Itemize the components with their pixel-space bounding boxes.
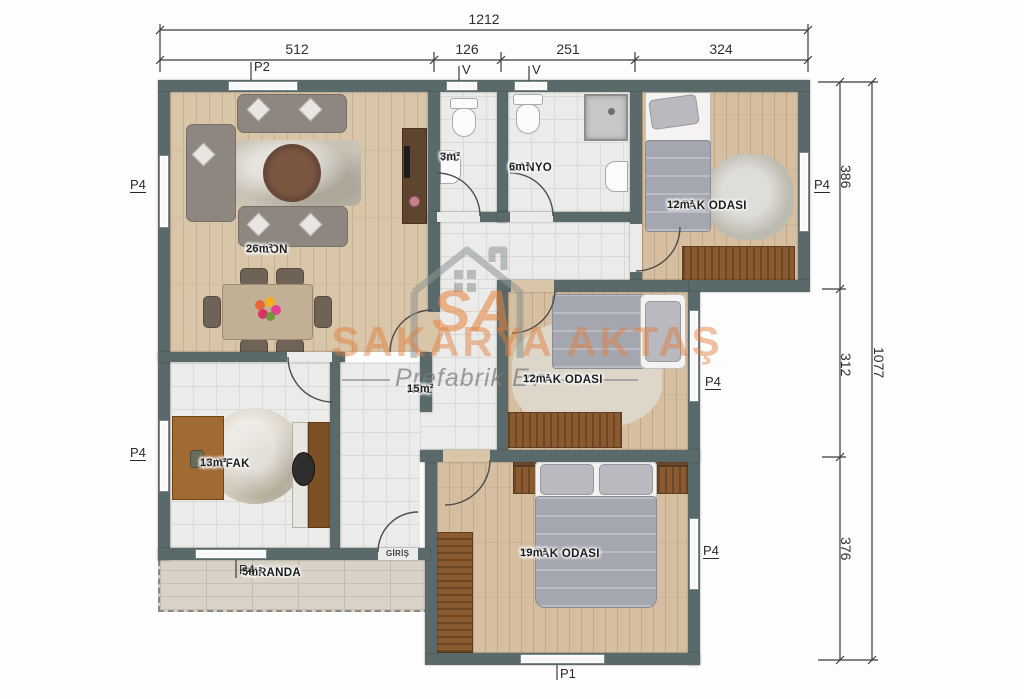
label-p4-salon-left: P4 [130,177,146,193]
label-v-banyo: V [532,62,541,77]
bedroom-middle-area: 12m² [523,374,550,386]
dim-top-total: 1212 [454,11,514,27]
bedroom-top-area: 12m² [667,200,694,212]
wc-door-arc [437,173,480,216]
banyo-door-arc [510,173,553,216]
dim-top-seg-251: 251 [538,41,598,57]
dim-right-total: 1077 [871,347,887,393]
bedroom-bottom-area: 19m² [520,548,547,560]
label-p2: P2 [254,59,270,74]
watermark-brand: SAKARYA AKTAŞ [292,318,762,366]
label-v-wc: V [462,62,471,77]
dim-top-seg-512: 512 [267,41,327,57]
bedroom-top-door-arc [636,227,680,271]
dim-top-seg-126: 126 [437,41,497,57]
watermark-dash-left [342,379,390,381]
entrance-label: GİRİŞ [386,549,409,558]
label-p4-veranda: P4 [239,562,255,577]
dim-right-seg-386: 386 [838,165,854,205]
entrance-door-arc [378,512,418,552]
bedroom-bottom-door-arc [445,460,490,505]
label-p4-bedroom-middle: P4 [705,374,721,390]
label-p4-mutfak-left: P4 [130,445,146,461]
label-p4-bedroom-bottom: P4 [703,543,719,559]
salon-area: 26m² [246,244,273,256]
dim-top-seg-324: 324 [691,41,751,57]
hol-area: 15m² [407,384,434,396]
dim-right-seg-312: 312 [838,353,854,393]
label-p4-bedroom-top: P4 [814,177,830,193]
banyo-area: 6m² [509,162,529,174]
dim-right-seg-376: 376 [838,537,854,577]
floor-plan-canvas: SA SAKARYA AKTAŞ Prefabrik Ev SALON 26m²… [0,0,1024,699]
wc-area: 3m² [440,152,460,164]
label-p1: P1 [560,666,576,681]
mutfak-area: 13m² [200,458,227,470]
